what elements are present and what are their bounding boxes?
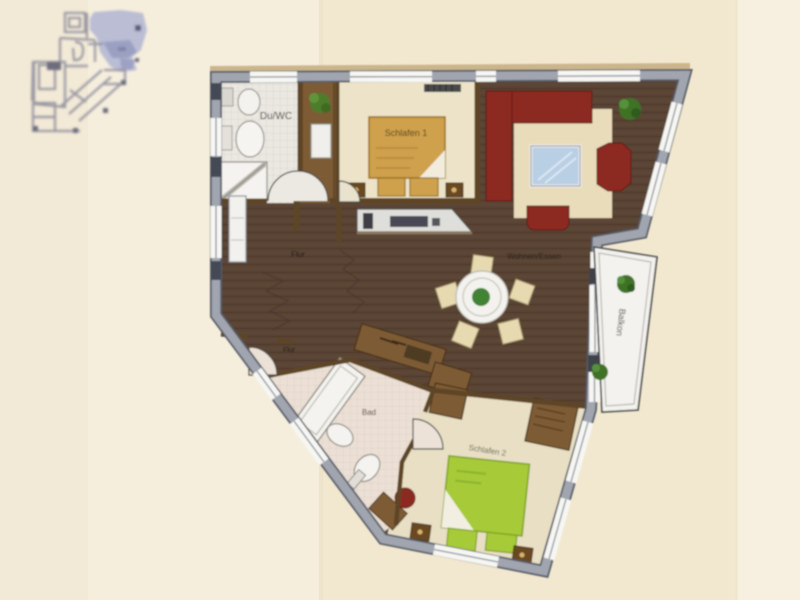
svg-text:Flur: Flur — [291, 250, 305, 259]
svg-text:Wohnen/Essen: Wohnen/Essen — [507, 252, 561, 261]
svg-text:Bad: Bad — [362, 408, 376, 417]
svg-text:Schlafen 1: Schlafen 1 — [385, 128, 428, 138]
svg-text:Du/WC: Du/WC — [260, 111, 292, 122]
svg-text:Flur: Flur — [283, 347, 296, 354]
